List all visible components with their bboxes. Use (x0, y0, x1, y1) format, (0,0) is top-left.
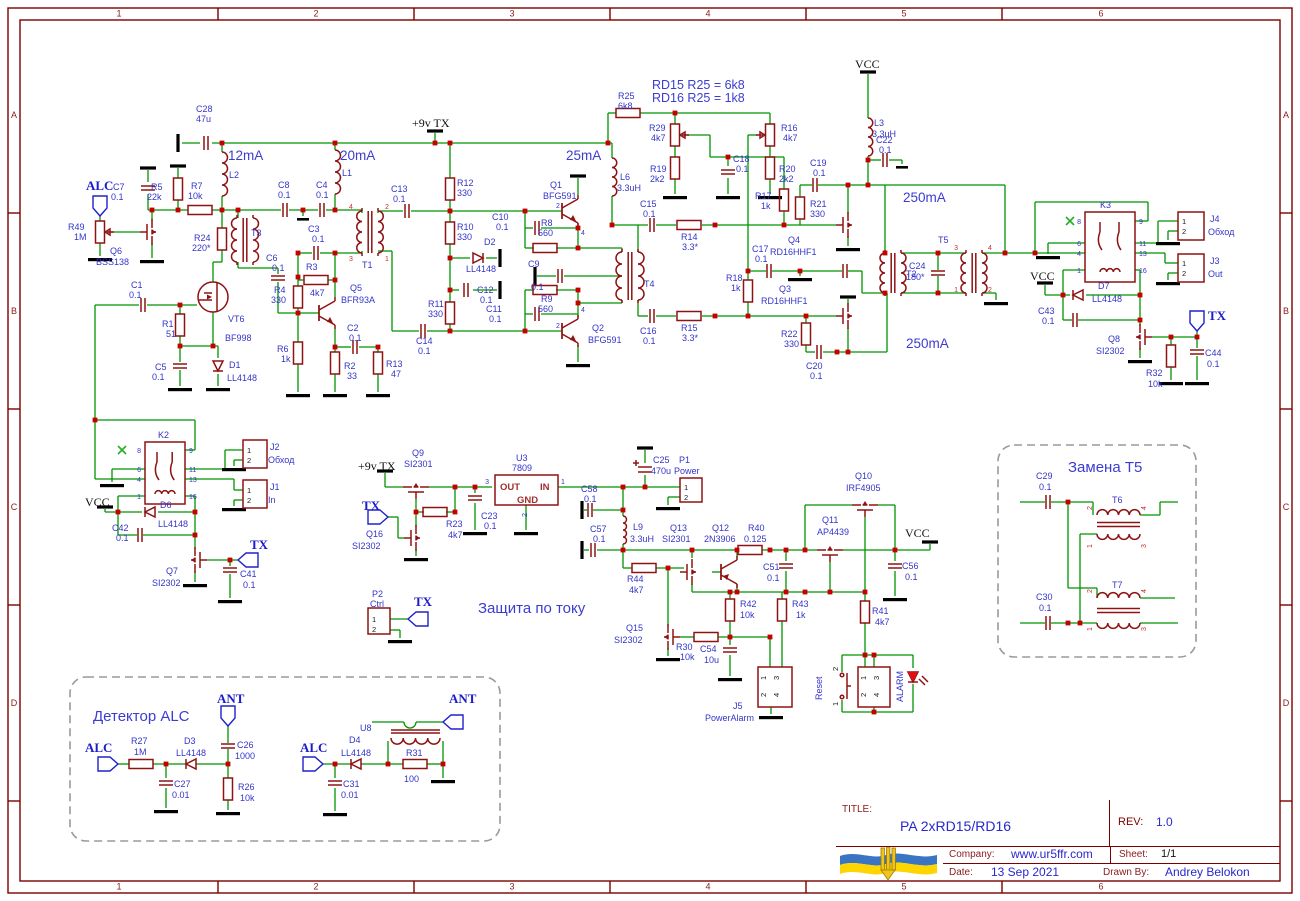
schematic-label: Защита по току (478, 600, 586, 617)
ground-icon (663, 196, 687, 199)
schematic-label: 4 (1141, 589, 1148, 593)
component-C26 (221, 744, 235, 748)
schematic-label: C15 (640, 199, 657, 209)
schematic-label: 47 (391, 369, 401, 379)
component-C4 (320, 203, 324, 217)
schematic-label: TX (414, 594, 433, 609)
schematic-label: +9v TX (412, 116, 450, 130)
component-C19 (813, 178, 817, 192)
component-Q3 (836, 303, 852, 329)
component-J5 (758, 667, 792, 707)
schematic-label: LL4148 (176, 748, 206, 758)
ground-icon (286, 394, 310, 397)
schematic-label: 330 (271, 295, 286, 305)
schematic-page: 112233445566AABBCCDDC2847u12mA20mA25mA+9… (0, 0, 1300, 901)
component-R11 (446, 302, 455, 324)
grid-ref-col: 3 (509, 9, 514, 19)
schematic-label: 2 (556, 323, 560, 330)
junction-dot (441, 762, 446, 767)
schematic-label: R5 (151, 182, 163, 192)
component-C13 (405, 204, 409, 218)
schematic-label: 3 (772, 676, 781, 680)
alc-flag (303, 757, 323, 771)
sheet-value: 1/1 (1161, 848, 1176, 860)
schematic-label: 1 (561, 479, 565, 486)
schematic-label: L6 (620, 172, 630, 182)
schematic-label: C54 (700, 644, 717, 654)
schematic-label: 100 (404, 774, 419, 784)
junction-dot (1003, 251, 1008, 256)
schematic-label: VCC (855, 57, 880, 71)
grid-ref-row: C (11, 502, 18, 512)
schematic-label: ALC (86, 178, 113, 193)
schematic-label: 25mA (566, 148, 601, 163)
ground-icon (216, 812, 240, 815)
schematic-label: 2 (1087, 506, 1094, 510)
component-R7 (188, 206, 212, 215)
schematic-label: 4 (772, 693, 781, 697)
schematic-label: D3 (184, 736, 196, 746)
schematic-label: 1 (1087, 627, 1094, 631)
component-C57 (591, 543, 595, 557)
junction-dot (453, 485, 458, 490)
grid-ref-row: A (1283, 110, 1289, 120)
junction-dot (768, 548, 773, 553)
schematic-label: K2 (158, 430, 169, 440)
junction-dot (1169, 335, 1174, 340)
schematic-label: 0.1 (116, 533, 129, 543)
wire-segments (95, 74, 1197, 811)
schematic-label: SI2302 (614, 635, 643, 645)
schematic-label: 2 (556, 203, 560, 210)
component-Q8 (1136, 324, 1152, 350)
schematic-label: 3.3* (682, 333, 699, 343)
schematic-label: 4 (1141, 506, 1148, 510)
schematic-label: C11 (486, 304, 502, 314)
junction-dot (211, 344, 216, 349)
component-R32 (1167, 345, 1176, 367)
junction-dot (846, 183, 851, 188)
schematic-label: T4 (644, 279, 655, 289)
schematic-label: C30 (1036, 592, 1053, 602)
schematic-label: R12 (457, 178, 474, 188)
schematic-label: 10k (240, 793, 255, 803)
schematic-label: C6 (266, 253, 278, 263)
ground-icon (323, 813, 347, 816)
schematic-label: 220* (192, 243, 211, 253)
schematic-label: 2k2 (650, 174, 665, 184)
schematic-label: VCC (1030, 269, 1055, 283)
component-L2 (222, 152, 228, 196)
junction-dot (803, 590, 808, 595)
junction-dot (296, 275, 301, 280)
schematic-label: 10u (704, 655, 719, 665)
grid-ref-col: 5 (901, 882, 906, 892)
component-Q12 (721, 556, 737, 588)
junction-dot (164, 762, 169, 767)
schematic-label: 2 (759, 693, 768, 697)
junction-dot (872, 710, 877, 715)
grid-ref-col: 4 (705, 882, 710, 892)
grid-ref-col: 1 (116, 882, 121, 892)
component-C9 (558, 269, 562, 283)
schematic-label: Q8 (1108, 334, 1120, 344)
schematic-label: 0.1 (489, 314, 502, 324)
ground-icon (168, 388, 192, 391)
schematic-label: R14 (681, 232, 698, 242)
schematic-label: R4 (274, 285, 286, 295)
component-Q6 (140, 219, 156, 245)
schematic-label: R30 (676, 642, 693, 652)
component-T6 (1097, 510, 1140, 540)
grid-ref-col: 3 (509, 882, 514, 892)
sheet-frame: 112233445566AABBCCDD (8, 8, 1292, 893)
schematic-label: Q15 (626, 623, 643, 633)
component-D2 (473, 253, 483, 263)
rev-value: 1.0 (1156, 815, 1173, 829)
schematic-label: C9 (528, 259, 540, 269)
schematic-label: RD16HHF1 (761, 296, 808, 306)
ground-symbols (88, 70, 1209, 816)
junction-dot (448, 209, 453, 214)
component-R21 (796, 197, 805, 219)
sheet-cell: Sheet: 1/1 (1110, 846, 1280, 863)
junction-dot (746, 314, 751, 319)
schematic-label: 0.1 (593, 534, 606, 544)
schematic-label: 3 (349, 256, 353, 263)
schematic-label: 0.1 (484, 521, 497, 531)
trident-icon (881, 847, 895, 880)
ground-icon (896, 166, 908, 169)
schematic-label: L1 (342, 168, 352, 178)
schematic-label: 1 (759, 676, 768, 680)
component-D1 (213, 361, 223, 371)
schematic-label: 0.1 (905, 572, 918, 582)
schematic-label: BFR93A (341, 295, 375, 305)
component-R29 (671, 124, 690, 146)
schematic-label: J2 (270, 442, 280, 452)
schematic-label: R15 (681, 323, 698, 333)
junction-dot (333, 141, 338, 146)
schematic-label: Обход (1208, 227, 1235, 237)
junction-dot (803, 548, 808, 553)
schematic-label: TX (362, 498, 381, 513)
component-R13 (374, 352, 383, 374)
schematic-label: BSS138 (96, 257, 129, 267)
schematic-label: 0.1 (1207, 359, 1220, 369)
component-T3 (232, 215, 259, 265)
schematic-label: R8 (541, 218, 553, 228)
junction-dot (93, 418, 98, 423)
schematic-label: 1M (74, 232, 87, 242)
schematic-label: 3 (954, 245, 958, 252)
schematic-label: 13 (1139, 251, 1147, 258)
junction-dot (178, 344, 183, 349)
schematic-label: 1 (247, 486, 251, 495)
component-R2 (331, 352, 340, 374)
component-C5 (173, 364, 187, 368)
power-bar-icon (637, 446, 653, 449)
schematic-label: 2 (859, 693, 868, 697)
schematic-label: 330 (428, 309, 443, 319)
schematic-label: R3 (306, 262, 318, 272)
junction-dot (846, 350, 851, 355)
junction-dot (296, 311, 301, 316)
schematic-label: C56 (902, 561, 919, 571)
component-K3 (1085, 212, 1135, 282)
schematic-label: 12mA (228, 148, 263, 163)
junction-dot (863, 653, 868, 658)
junction-dot (621, 485, 626, 490)
alc-flag (93, 196, 107, 216)
schematic-label: ANT (449, 691, 477, 706)
grid-ref-col: 5 (901, 9, 906, 19)
schematic-label: Q7 (166, 566, 178, 576)
schematic-label: 0.1 (813, 168, 826, 178)
schematic-label: J1 (270, 482, 280, 492)
schematic-label: R11 (428, 299, 444, 309)
junction-dot (726, 155, 731, 160)
schematic-label: C17 (752, 244, 769, 254)
schematic-label: T6 (1112, 495, 1123, 505)
component-C29 (1046, 495, 1050, 509)
rf-ground-bar-icon (580, 541, 583, 559)
component-R5 (174, 178, 183, 200)
grid-ref-col: 2 (313, 882, 318, 892)
component-Q7 (191, 547, 207, 573)
junction-dot (621, 548, 626, 553)
ant-flag (221, 706, 235, 726)
component-C12 (464, 283, 468, 297)
schematic-label: RD16 R25 = 1k8 (652, 91, 745, 105)
schematic-label: 4 (349, 204, 353, 211)
schematic-label: LL4148 (466, 264, 496, 274)
schematic-label: 51 (166, 329, 176, 339)
junction-dot (804, 314, 809, 319)
component-C17 (767, 264, 771, 278)
schematic-label: T1 (362, 260, 373, 270)
schematic-label: 8 (137, 448, 141, 455)
logo-cell (836, 846, 943, 881)
schematic-label: R41 (872, 606, 889, 616)
junction-dot (236, 208, 241, 213)
junction-dot (666, 566, 671, 571)
schematic-label: C16 (640, 326, 657, 336)
component-T4 (616, 249, 644, 303)
schematic-label: Out (1208, 269, 1223, 279)
schematic-label: D4 (349, 735, 361, 745)
component-R44 (632, 564, 656, 573)
component-Q11 (817, 546, 843, 562)
schematic-label: 0.1 (152, 372, 165, 382)
junction-dot (193, 533, 198, 538)
rf-ground-bar-icon (498, 281, 501, 299)
schematic-label: TX (250, 537, 269, 552)
schematic-label: 2 (247, 496, 251, 505)
schematic-label: C19 (810, 158, 827, 168)
component-R3 (304, 276, 328, 285)
schematic-label: R43 (792, 599, 809, 609)
schematic-label: R18 (726, 273, 743, 283)
schematic-label: RD16HHF1 (770, 247, 817, 257)
schematic-label: C22 (876, 135, 893, 145)
junction-dot (333, 345, 338, 350)
component-ALARM-LED (908, 672, 928, 685)
junction-dot (333, 251, 338, 256)
component-R27 (129, 760, 153, 769)
schematic-label: SI2302 (1096, 346, 1125, 356)
ground-icon (1185, 382, 1209, 385)
junction-dot (448, 141, 453, 146)
schematic-label: 1 (859, 676, 868, 680)
schematic-label: Q11 (822, 515, 838, 525)
ground-icon (297, 218, 309, 221)
schematic-label: 1k (281, 354, 291, 364)
junction-dot (226, 762, 231, 767)
junction-dot (610, 223, 615, 228)
component-R41 (861, 601, 870, 623)
schematic-label: Детектор ALC (93, 708, 190, 725)
junction-dot (453, 510, 458, 515)
junction-dot (866, 158, 871, 163)
schematic-label: L2 (229, 170, 239, 180)
date-value: 13 Sep 2021 (991, 865, 1059, 879)
component-C24 (931, 271, 945, 275)
junction-dot (376, 345, 381, 350)
power-bar-icon (140, 166, 156, 169)
schematic-label: ALARM (895, 671, 905, 702)
schematic-label: 2 (1087, 589, 1094, 593)
component-ALARM (858, 667, 890, 707)
junction-dot (735, 590, 740, 595)
junction-dot (116, 510, 121, 515)
junction-dot (333, 208, 338, 213)
schematic-label: 3 (872, 676, 881, 680)
schematic-label: 0.1 (272, 263, 285, 273)
component-Q4 (836, 212, 852, 238)
rev-cell: REV: 1.0 (1110, 800, 1280, 846)
ground-icon (1156, 242, 1180, 245)
junction-dot (835, 350, 840, 355)
schematic-label: R24 (194, 233, 211, 243)
junction-dot (883, 251, 888, 256)
component-C30 (1046, 616, 1050, 630)
schematic-label: U3 (516, 453, 528, 463)
schematic-label: C23 (481, 511, 498, 521)
schematic-label: 0.1 (418, 346, 431, 356)
schematic-label: T3 (251, 228, 262, 238)
schematic-label: C18 (733, 154, 750, 164)
junction-dot (1078, 621, 1083, 626)
schematic-label: 22k (147, 192, 162, 202)
ground-icon (836, 248, 860, 251)
junction-dot (433, 141, 438, 146)
schematic-label: 0.1 (1042, 316, 1055, 326)
schematic-label: 0.1 (316, 190, 329, 200)
component-C25 (633, 460, 652, 472)
schematic-canvas: 112233445566AABBCCDDC2847u12mA20mA25mA+9… (0, 0, 1300, 901)
schematic-label: R42 (740, 599, 757, 609)
junction-dot (448, 256, 453, 261)
junction-dot (798, 269, 803, 274)
schematic-label: SI2301 (662, 534, 691, 544)
component-Q2 (562, 315, 578, 347)
junction-dot (296, 251, 301, 256)
ground-icon (431, 780, 455, 783)
schematic-label: L3 (874, 118, 884, 128)
schematic-label: R7 (191, 181, 203, 191)
junction-dot (448, 288, 453, 293)
schematic-label: LL4148 (1092, 294, 1122, 304)
drawn-by-value: Andrey Belokon (1165, 865, 1250, 879)
schematic-label: C14 (416, 336, 433, 346)
component-Q16 (404, 525, 420, 551)
schematic-label: 16 (1139, 268, 1147, 275)
schematic-label: 560 (538, 228, 553, 238)
schematic-label: Замена T5 (1068, 459, 1142, 476)
ground-icon (883, 598, 907, 601)
schematic-label: 0.1 (111, 192, 124, 202)
schematic-label: 3.3uH (617, 183, 641, 193)
schematic-label: R25 (618, 91, 635, 101)
schematic-label: 3 (1141, 627, 1148, 631)
schematic-label: 0.1 (755, 254, 768, 264)
junction-dot (220, 208, 225, 213)
grid-ref-col: 6 (1098, 882, 1103, 892)
junction-dot (883, 291, 888, 296)
schematic-label: C5 (155, 362, 167, 372)
ground-icon (656, 658, 680, 661)
schematic-label: R44 (627, 574, 644, 584)
company-value[interactable]: www.ur5ffr.com (1011, 847, 1093, 861)
schematic-label: 0.1 (349, 333, 362, 343)
schematic-label: C10 (492, 212, 509, 222)
junction-dot (576, 288, 581, 293)
junction-dot (872, 653, 877, 658)
schematic-label: 560 (538, 304, 553, 314)
component-R10 (446, 222, 455, 244)
schematic-label: 1 (954, 287, 958, 294)
component-Q9 (403, 483, 429, 499)
schematic-label: VCC (85, 495, 110, 509)
schematic-label: C31 (343, 779, 360, 789)
schematic-label: AP4439 (817, 527, 849, 537)
component-C1 (141, 298, 145, 312)
schematic-label: D1 (229, 360, 241, 370)
schematic-label: Q10 (855, 471, 872, 481)
junction-dot (220, 141, 225, 146)
schematic-label: 6 (1077, 241, 1081, 248)
junction-dot (414, 510, 419, 515)
schematic-label: C41 (240, 569, 257, 579)
schematic-label: 1 (372, 615, 376, 624)
schematic-label: L9 (633, 522, 643, 532)
junction-dot (936, 251, 941, 256)
component-R20 (766, 157, 775, 179)
schematic-label: 1 (1077, 268, 1081, 275)
schematic-label: 1 (1087, 544, 1094, 548)
component-R31 (403, 760, 427, 769)
schematic-label: 4k7 (448, 530, 463, 540)
schematic-label: 4k7 (875, 617, 890, 627)
junction-dot (576, 301, 581, 306)
schematic-label: Q9 (412, 448, 424, 458)
schematic-label: 1 (831, 702, 840, 706)
schematic-label: 1 (1182, 217, 1186, 226)
schematic-label: C20 (806, 361, 823, 371)
schematic-label: R22 (781, 329, 798, 339)
schematic-label: R10 (457, 222, 474, 232)
